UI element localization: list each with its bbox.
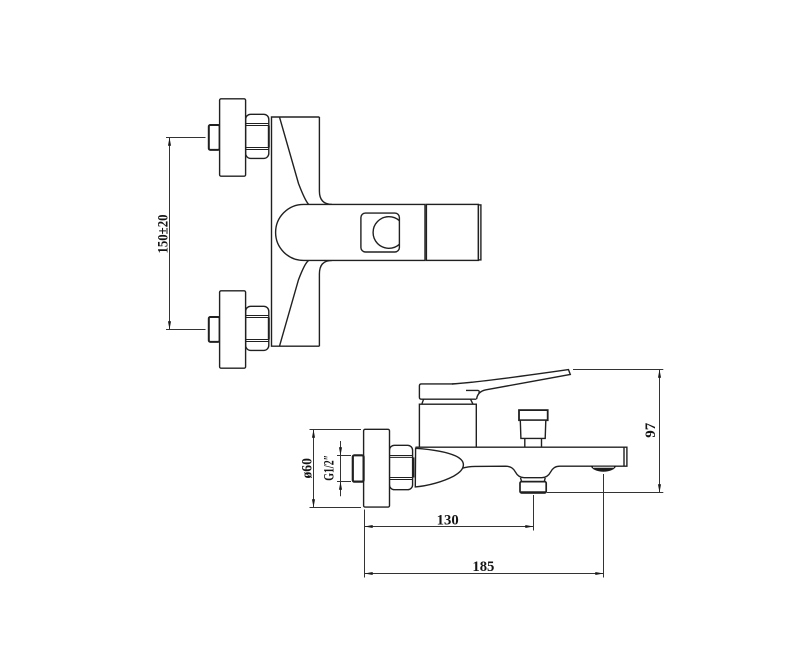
- svg-text:130: 130: [437, 513, 459, 529]
- svg-text:G1/2″: G1/2″: [321, 455, 337, 481]
- svg-text:185: 185: [472, 559, 494, 575]
- svg-text:97: 97: [643, 423, 659, 438]
- svg-text:ø60: ø60: [299, 458, 315, 479]
- svg-text:150±20: 150±20: [155, 215, 171, 254]
